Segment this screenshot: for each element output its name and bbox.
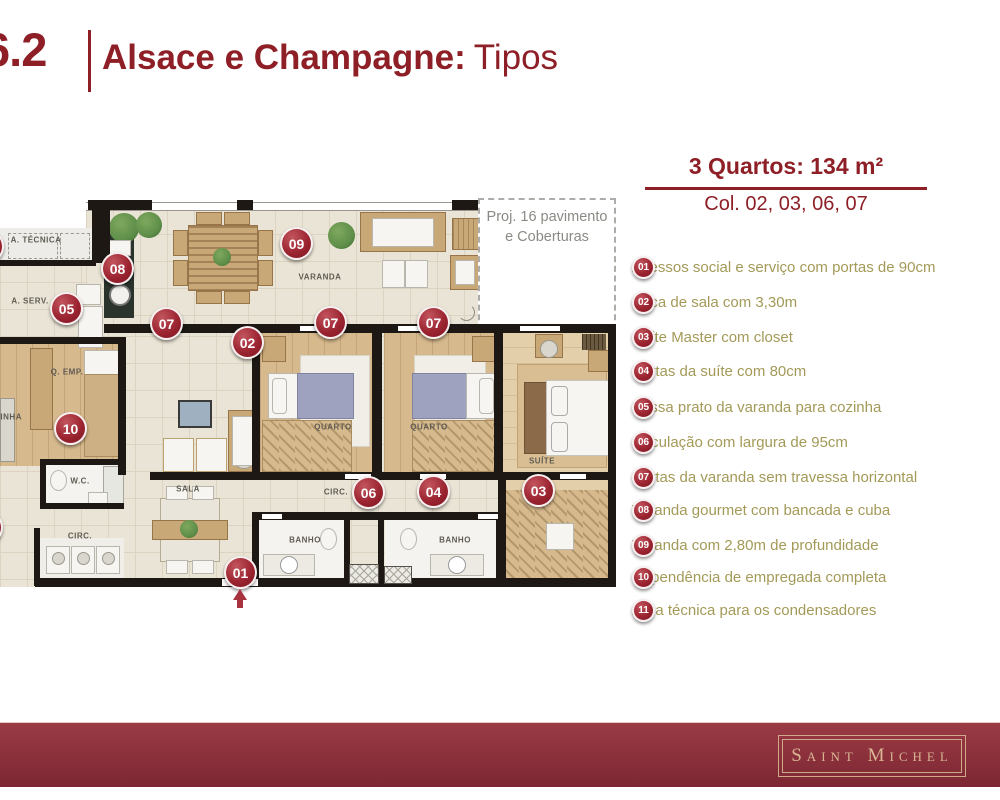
armchair xyxy=(163,438,194,472)
wall xyxy=(0,337,126,344)
wall xyxy=(35,578,616,587)
condenser-unit xyxy=(60,233,90,259)
plan-badge-07: 07 xyxy=(150,307,183,340)
legend-item-10: 10Dependência de empregada completa xyxy=(632,569,886,586)
legend-item-text: Acessos social e serviço com portas de 9… xyxy=(632,259,935,276)
room-label: Q. EMP. xyxy=(51,368,84,377)
coffee-table xyxy=(405,260,428,288)
table-centerpiece xyxy=(213,248,231,266)
legend-badge-01: 01 xyxy=(632,256,655,279)
quarto1-pillow xyxy=(272,378,287,414)
projection-note-line1: Proj. 16 pavimento xyxy=(480,208,614,228)
plant xyxy=(136,212,162,238)
plan-badge-04: 04 xyxy=(417,475,450,508)
wall xyxy=(372,331,382,472)
qemp-bed-blanket xyxy=(84,374,121,457)
chair xyxy=(224,291,250,304)
banho1-sink xyxy=(280,556,298,574)
legend-item-07: 07Portas da varanda sem travessa horizon… xyxy=(632,469,917,486)
tv-panel xyxy=(178,400,212,428)
quarto2-pillow xyxy=(479,378,494,414)
wall xyxy=(40,459,46,509)
shaft xyxy=(384,566,412,584)
qemp-bed-pillow xyxy=(84,350,120,376)
legend-item-text: Suíte Master com closet xyxy=(632,329,793,346)
kitchen-counter xyxy=(0,398,15,462)
legend-item-text: Varanda gourmet com bancada e cuba xyxy=(632,502,890,519)
legend-item-text: Varanda com 2,80m de profundidade xyxy=(632,537,879,554)
room-label: CIRC. xyxy=(68,532,92,541)
room-label: BANHO xyxy=(439,536,471,545)
wall xyxy=(496,512,504,584)
room-label: A. SERV. xyxy=(11,297,48,306)
legend-badge-05: 05 xyxy=(632,396,655,419)
sofa-cushion xyxy=(232,416,254,466)
legend-item-03: 03Suíte Master com closet xyxy=(632,329,793,346)
legend-badge-11: 11 xyxy=(632,599,655,622)
plan-badge-07: 07 xyxy=(417,306,450,339)
suite-pillow xyxy=(551,386,568,416)
chair xyxy=(192,560,214,574)
chair xyxy=(173,260,188,286)
legend-item-text: Passa prato da varanda para cozinha xyxy=(632,399,881,416)
banho2-toilet xyxy=(400,528,417,550)
chair xyxy=(196,212,222,225)
summary-columns: Col. 02, 03, 06, 07 xyxy=(645,193,927,216)
room-label: QUARTO xyxy=(314,423,352,432)
legend-badge-03: 03 xyxy=(632,326,655,349)
shaft xyxy=(349,564,379,584)
legend-item-01: 01Acessos social e serviço com portas de… xyxy=(632,259,935,276)
closet-island xyxy=(546,523,574,550)
wall xyxy=(40,459,124,465)
door-opening xyxy=(478,514,498,519)
projection-note-line2: e Coberturas xyxy=(480,228,614,248)
quarto2-mattress xyxy=(412,373,469,419)
suite-headboard xyxy=(524,382,548,454)
legend-item-text: Dependência de empregada completa xyxy=(632,569,886,586)
armchair xyxy=(196,438,227,472)
plan-badge-06: 06 xyxy=(352,476,385,509)
legend-item-text: Portas da suíte com 80cm xyxy=(632,363,806,380)
door-opening xyxy=(520,326,560,331)
plan-badge-08: 08 xyxy=(101,252,134,285)
room-label: VARANDA xyxy=(299,273,342,282)
room-label: BANHO xyxy=(289,536,321,545)
banho1-toilet xyxy=(320,528,337,550)
room-label: SALA xyxy=(176,485,200,494)
wc-toilet xyxy=(50,470,67,491)
page-title-main: Alsace e Champagne: xyxy=(102,38,466,77)
legend-badge-08: 08 xyxy=(632,499,655,522)
suite-dresser xyxy=(582,334,606,350)
plan-badge-01: 01 xyxy=(224,556,257,589)
gourmet-sink xyxy=(109,284,131,306)
legend-item-09: 09Varanda com 2,80m de profundidade xyxy=(632,537,879,554)
side-table xyxy=(452,218,479,250)
brand-logo-text: Saint Michel xyxy=(791,745,953,767)
page-title-suffix: Tipos xyxy=(474,38,558,77)
room-label: CIRC. xyxy=(324,488,348,497)
title-divider xyxy=(88,30,91,92)
wall xyxy=(608,324,616,587)
slide: { "slide": { "section_number": "6.2", "t… xyxy=(0,0,1000,800)
plant xyxy=(328,222,355,249)
legend-item-04: 04Portas da suíte com 80cm xyxy=(632,363,806,380)
chair xyxy=(258,260,273,286)
legend-item-text: Circulação com largura de 95cm xyxy=(632,434,848,451)
legend-badge-09: 09 xyxy=(632,534,655,557)
brand-box-inner: Saint Michel xyxy=(782,739,962,773)
room-label: COZINHA xyxy=(0,413,22,422)
legend-item-05: 05Passa prato da varanda para cozinha xyxy=(632,399,881,416)
section-number: 6.2 xyxy=(0,22,46,77)
footer-bar: Saint Michel xyxy=(0,722,1000,787)
banho2-sink xyxy=(448,556,466,574)
legend-item-text: Portas da varanda sem travessa horizonta… xyxy=(632,469,917,486)
plan-badge-10: 10 xyxy=(54,412,87,445)
chair xyxy=(173,230,188,256)
plan-badge-09: 09 xyxy=(280,227,313,260)
room-label: W.C. xyxy=(70,477,89,486)
wall xyxy=(494,331,503,472)
quarto1-mattress xyxy=(297,373,354,419)
quarto1-nightstand xyxy=(262,336,286,362)
room-label: QUARTO xyxy=(410,423,448,432)
chair xyxy=(224,212,250,225)
suite-desk-chair xyxy=(540,340,558,358)
plan-badge-02: 02 xyxy=(231,326,264,359)
door-opening xyxy=(560,474,586,479)
summary-divider xyxy=(645,187,927,190)
summary-heading: 3 Quartos: 134 m² xyxy=(645,153,927,180)
suite-pillow xyxy=(551,422,568,452)
qemp-wardrobe xyxy=(30,348,53,430)
wall xyxy=(452,200,478,210)
wall xyxy=(237,200,253,210)
wall xyxy=(0,260,96,266)
projection-note: Proj. 16 pavimento e Coberturas xyxy=(478,198,616,330)
legend-item-11: 11Área técnica para os condensadores xyxy=(632,602,876,619)
coffee-table xyxy=(382,260,405,288)
plan-badge-07: 07 xyxy=(314,306,347,339)
legend-badge-07: 07 xyxy=(632,466,655,489)
legend-item-02: 02Boca de sala com 3,30m xyxy=(632,294,797,311)
plant xyxy=(109,213,139,243)
legend-item-06: 06Circulação com largura de 95cm xyxy=(632,434,848,451)
sofa-cushion xyxy=(372,218,434,247)
chair xyxy=(196,291,222,304)
table-plant xyxy=(180,520,198,538)
brand-box: Saint Michel xyxy=(778,735,966,777)
room-label: SUÍTE xyxy=(529,457,555,466)
plan-badge-05: 05 xyxy=(50,292,83,325)
wall xyxy=(118,337,126,475)
wall xyxy=(40,503,124,509)
door-opening xyxy=(262,514,282,519)
appliance-door xyxy=(102,552,115,565)
armchair-cushion xyxy=(455,260,475,285)
room-label: A. TÉCNICA xyxy=(11,236,62,245)
floor-plan: Proj. 16 pavimento e Coberturas xyxy=(0,198,620,620)
legend-badge-10: 10 xyxy=(632,566,655,589)
legend-badge-04: 04 xyxy=(632,360,655,383)
legend-item-text: Área técnica para os condensadores xyxy=(632,602,876,619)
legend-badge-06: 06 xyxy=(632,431,655,454)
quarto2-nightstand xyxy=(472,336,496,362)
door-swing-icon xyxy=(458,304,475,321)
page-title: Alsace e Champagne:Tipos xyxy=(102,38,558,78)
legend-badge-02: 02 xyxy=(632,291,655,314)
chair xyxy=(258,230,273,256)
legend-item-text: Boca de sala com 3,30m xyxy=(632,294,797,311)
appliance-door xyxy=(77,552,90,565)
entrance-arrow-stem xyxy=(237,599,243,608)
suite-nightstand xyxy=(588,350,610,372)
appliance-door xyxy=(52,552,65,565)
plan-badge-03: 03 xyxy=(522,474,555,507)
chair xyxy=(166,560,188,574)
legend-item-08: 08Varanda gourmet com bancada e cuba xyxy=(632,502,890,519)
